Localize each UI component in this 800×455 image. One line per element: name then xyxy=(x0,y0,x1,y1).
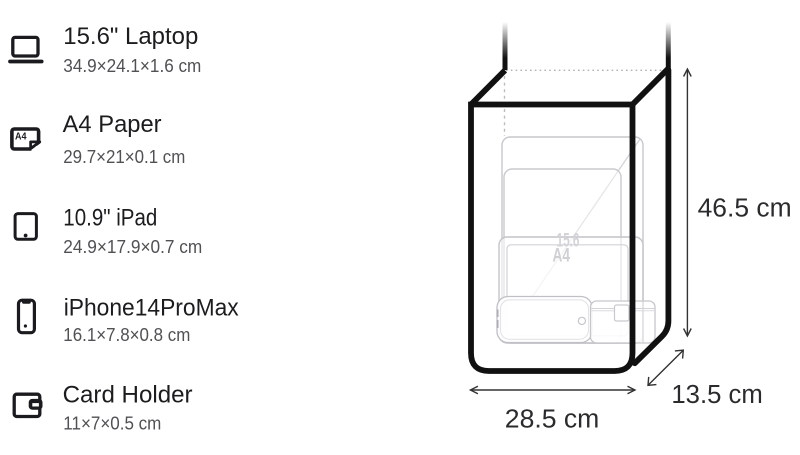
svg-text:A4 Paper: A4 Paper xyxy=(63,111,162,138)
svg-text:34.9×24.1×1.6 cm: 34.9×24.1×1.6 cm xyxy=(63,55,201,76)
svg-text:28.5 cm: 28.5 cm xyxy=(505,403,600,433)
svg-text:46.5 cm: 46.5 cm xyxy=(698,193,792,223)
svg-text:Card Holder: Card Holder xyxy=(63,381,193,408)
svg-text:15.6" Laptop: 15.6" Laptop xyxy=(63,23,198,50)
svg-text:16.1×7.8×0.8 cm: 16.1×7.8×0.8 cm xyxy=(63,324,190,345)
svg-text:A4: A4 xyxy=(15,131,27,142)
svg-text:A4: A4 xyxy=(553,244,571,266)
svg-text:11×7×0.5 cm: 11×7×0.5 cm xyxy=(63,413,161,434)
svg-text:29.7×21×0.1 cm: 29.7×21×0.1 cm xyxy=(63,146,185,167)
svg-text:24.9×17.9×0.7 cm: 24.9×17.9×0.7 cm xyxy=(63,236,202,257)
svg-text:13.5 cm: 13.5 cm xyxy=(671,379,762,409)
svg-text:10.9" iPad: 10.9" iPad xyxy=(63,205,157,232)
svg-text:iPhone14ProMax: iPhone14ProMax xyxy=(64,295,239,322)
